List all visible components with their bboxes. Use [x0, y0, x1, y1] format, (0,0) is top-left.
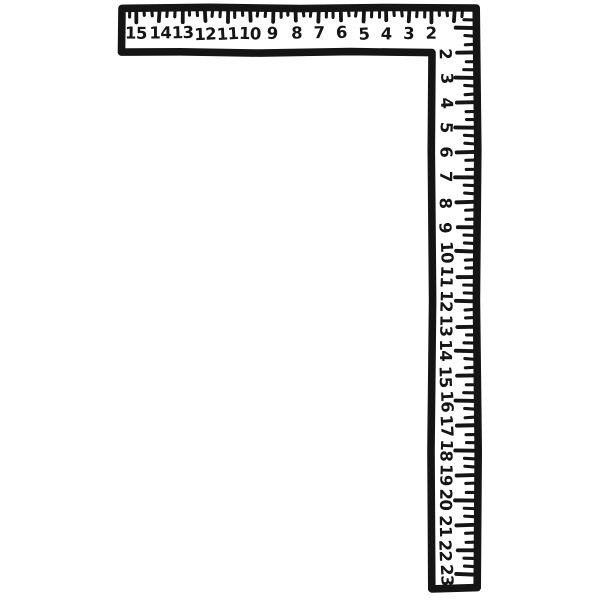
blade-number-11: 11 — [216, 24, 239, 44]
blade-number-4: 4 — [380, 24, 392, 44]
blade-number-9: 9 — [267, 24, 278, 43]
blade-number-5: 5 — [358, 24, 370, 44]
square-outline — [122, 7, 479, 589]
tongue-number-15: 15 — [435, 366, 454, 388]
tongue-tick — [465, 417, 474, 418]
tongue-number-8: 8 — [436, 197, 455, 208]
tongue-number-17: 17 — [436, 414, 456, 437]
tongue-number-21: 21 — [436, 515, 455, 537]
tongue-tick — [456, 301, 474, 302]
tongue-tick — [465, 408, 474, 409]
tongue-tick — [465, 466, 474, 467]
tongue-tick — [465, 94, 474, 95]
blade-tick — [257, 11, 258, 17]
blade-number-6: 6 — [336, 23, 348, 42]
tongue-number-16: 16 — [437, 390, 457, 413]
framing-square-illustration: 15141312111098765432 2345678910111213141… — [0, 0, 600, 600]
tongue-scale-numbers: 234567891011121314151617181920212223 — [435, 48, 457, 587]
tongue-number-19: 19 — [436, 464, 455, 486]
blade-number-15: 15 — [125, 24, 147, 43]
tongue-number-3: 3 — [437, 72, 456, 84]
blade-number-12: 12 — [194, 24, 217, 44]
blade-number-3: 3 — [403, 24, 415, 43]
tongue-tick — [465, 359, 474, 360]
tongue-tick — [465, 143, 474, 144]
tongue-tick — [456, 202, 473, 203]
blade-tick — [409, 11, 410, 22]
framing-square-svg: 15141312111098765432 2345678910111213141… — [0, 0, 600, 600]
tongue-number-20: 20 — [436, 489, 455, 511]
tongue-number-10: 10 — [437, 241, 457, 264]
tongue-tick — [456, 251, 474, 252]
tongue-number-13: 13 — [436, 315, 455, 337]
blade-tick — [303, 11, 304, 16]
tongue-tick — [465, 36, 474, 37]
tongue-tick — [456, 525, 473, 526]
blade-number-7: 7 — [313, 23, 324, 42]
tongue-tick — [465, 193, 474, 194]
tongue-number-5: 5 — [437, 121, 456, 133]
tongue-number-4: 4 — [437, 97, 457, 109]
blade-tick — [356, 11, 357, 17]
tongue-number-2: 2 — [436, 48, 455, 59]
blade-number-8: 8 — [291, 24, 302, 43]
blade-tick — [402, 11, 403, 16]
tongue-number-12: 12 — [436, 290, 456, 312]
blade-tick — [454, 11, 455, 22]
tongue-number-22: 22 — [435, 539, 455, 561]
blade-tick — [159, 11, 160, 22]
tongue-tick — [456, 574, 474, 575]
blade-number-13: 13 — [172, 23, 194, 42]
tongue-number-7: 7 — [436, 171, 455, 182]
tongue-tick — [465, 85, 474, 86]
tongue-number-18: 18 — [436, 439, 456, 462]
tongue-number-11: 11 — [436, 265, 456, 288]
blade-number-14: 14 — [149, 23, 171, 42]
blade-number-2: 2 — [425, 24, 436, 43]
blade-tick — [310, 11, 311, 17]
blade-number-10: 10 — [239, 24, 262, 44]
blade-tick — [212, 11, 213, 17]
blade-tick — [205, 11, 206, 21]
tongue-number-9: 9 — [435, 222, 454, 234]
tongue-tick — [465, 516, 474, 517]
tongue-number-6: 6 — [436, 146, 455, 157]
tongue-tick — [465, 309, 474, 310]
tongue-number-23: 23 — [437, 564, 457, 587]
tongue-number-14: 14 — [436, 339, 455, 361]
